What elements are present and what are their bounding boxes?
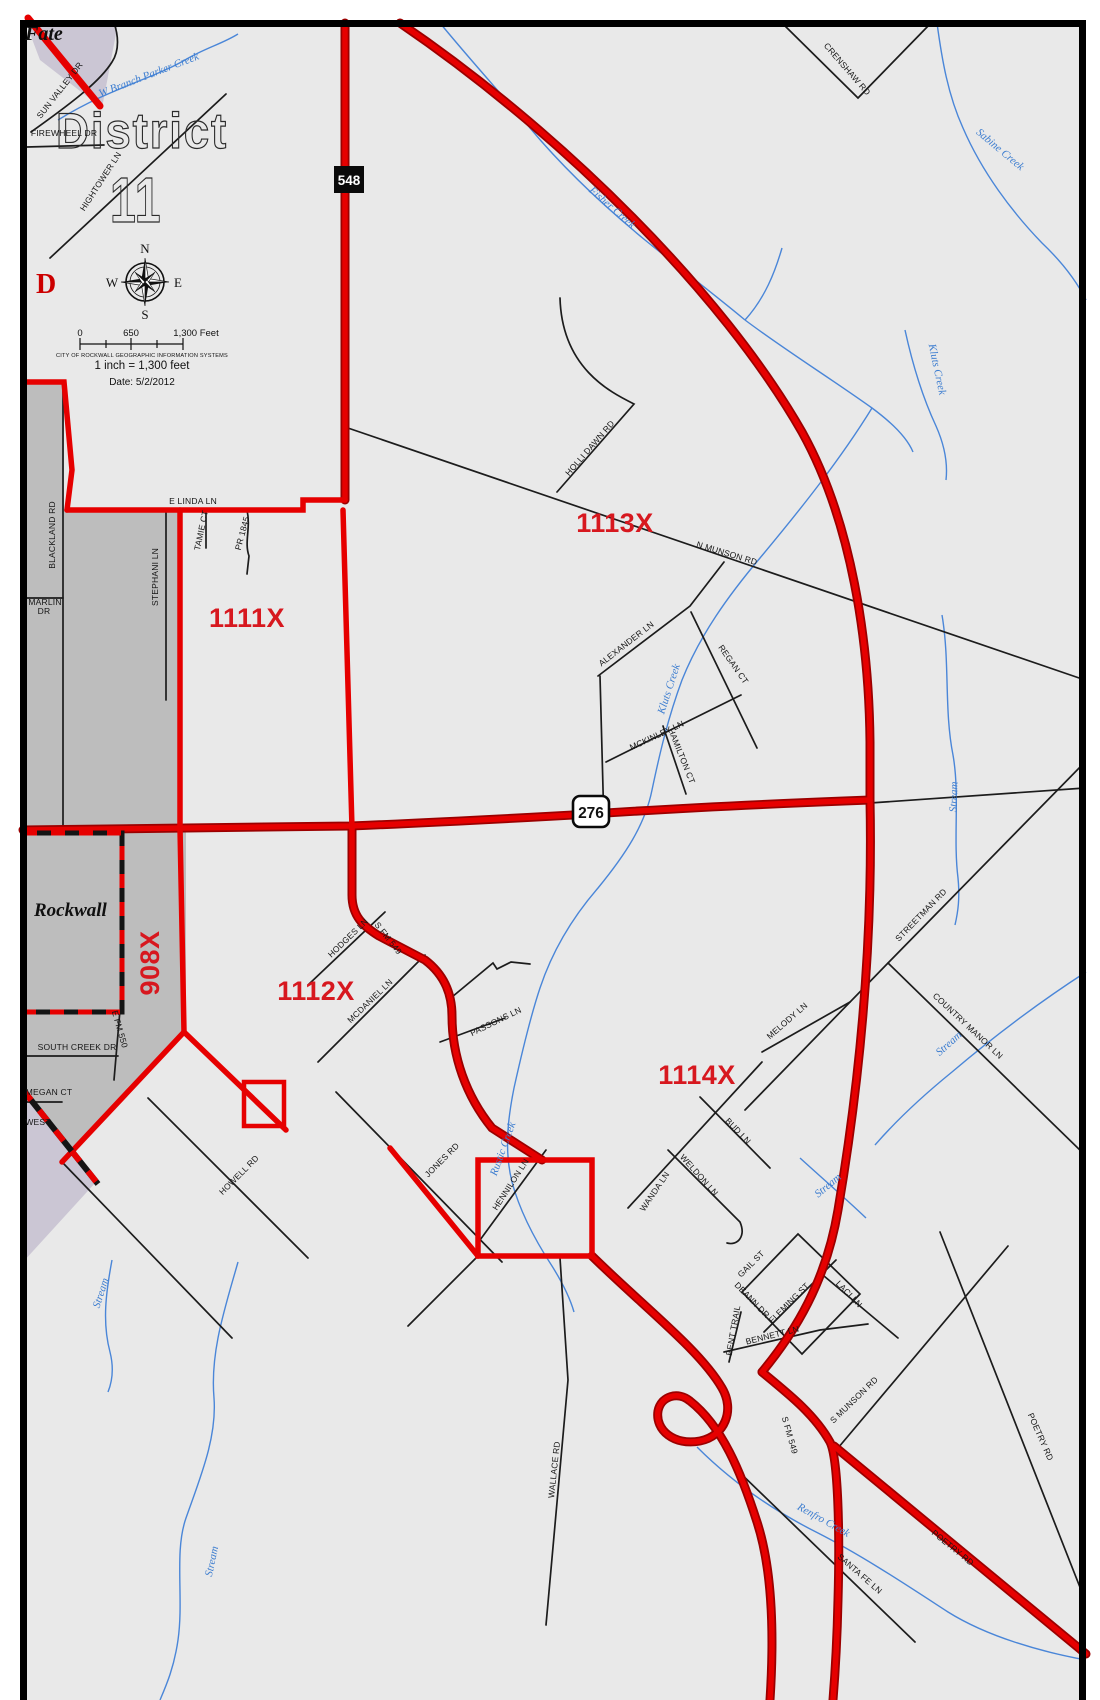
scale-ratio-text: 1 inch = 1,300 feet	[95, 360, 191, 372]
water-label: Stream	[947, 781, 960, 812]
rockwall-city-area-a	[23, 382, 64, 510]
scale-tick-0: 0	[77, 328, 82, 339]
street-label: E LINDA LN	[169, 496, 217, 506]
street-label: WEST	[25, 1117, 50, 1127]
district-label: 908X	[135, 930, 165, 995]
street-label: FIREWHEEL DR	[31, 128, 97, 138]
highway-shield-276: 276	[573, 796, 609, 827]
street-label: BLACKLAND RD	[47, 501, 57, 569]
district-label: 1112X	[277, 976, 355, 1006]
map-page: District 11 Fate Rockwall D N S W E	[0, 0, 1100, 1700]
compass-s-label: S	[141, 307, 148, 322]
district-label: 1113X	[576, 508, 654, 538]
shield-548-label: 548	[338, 173, 361, 188]
street-label: STEPHANI LN	[150, 548, 160, 606]
scale-tick-1300: 1,300 Feet	[173, 328, 219, 339]
shield-276-label: 276	[578, 805, 604, 822]
compass-e-label: E	[174, 275, 182, 290]
compass-w-label: W	[106, 275, 119, 290]
place-label-partial-d: D	[36, 269, 56, 300]
compass-n-label: N	[140, 241, 150, 256]
place-label-rockwall: Rockwall	[33, 900, 108, 921]
street-label: MEGAN CT	[26, 1087, 72, 1097]
place-label-fate: Fate	[24, 23, 63, 45]
background-title-line2: 11	[110, 164, 162, 236]
attribution-text: CITY OF ROCKWALL GEOGRAPHIC INFORMATION …	[56, 353, 228, 359]
district-label: 1114X	[658, 1060, 736, 1090]
highway-shield-548: 548	[334, 166, 364, 193]
district-map: District 11 Fate Rockwall D N S W E	[0, 0, 1100, 1700]
district-label: 1111X	[209, 603, 285, 633]
street-label: DR	[38, 606, 51, 616]
scale-tick-650: 650	[123, 328, 139, 339]
map-date: Date: 5/2/2012	[109, 377, 175, 388]
street-label: SOUTH CREEK DR	[38, 1042, 117, 1052]
